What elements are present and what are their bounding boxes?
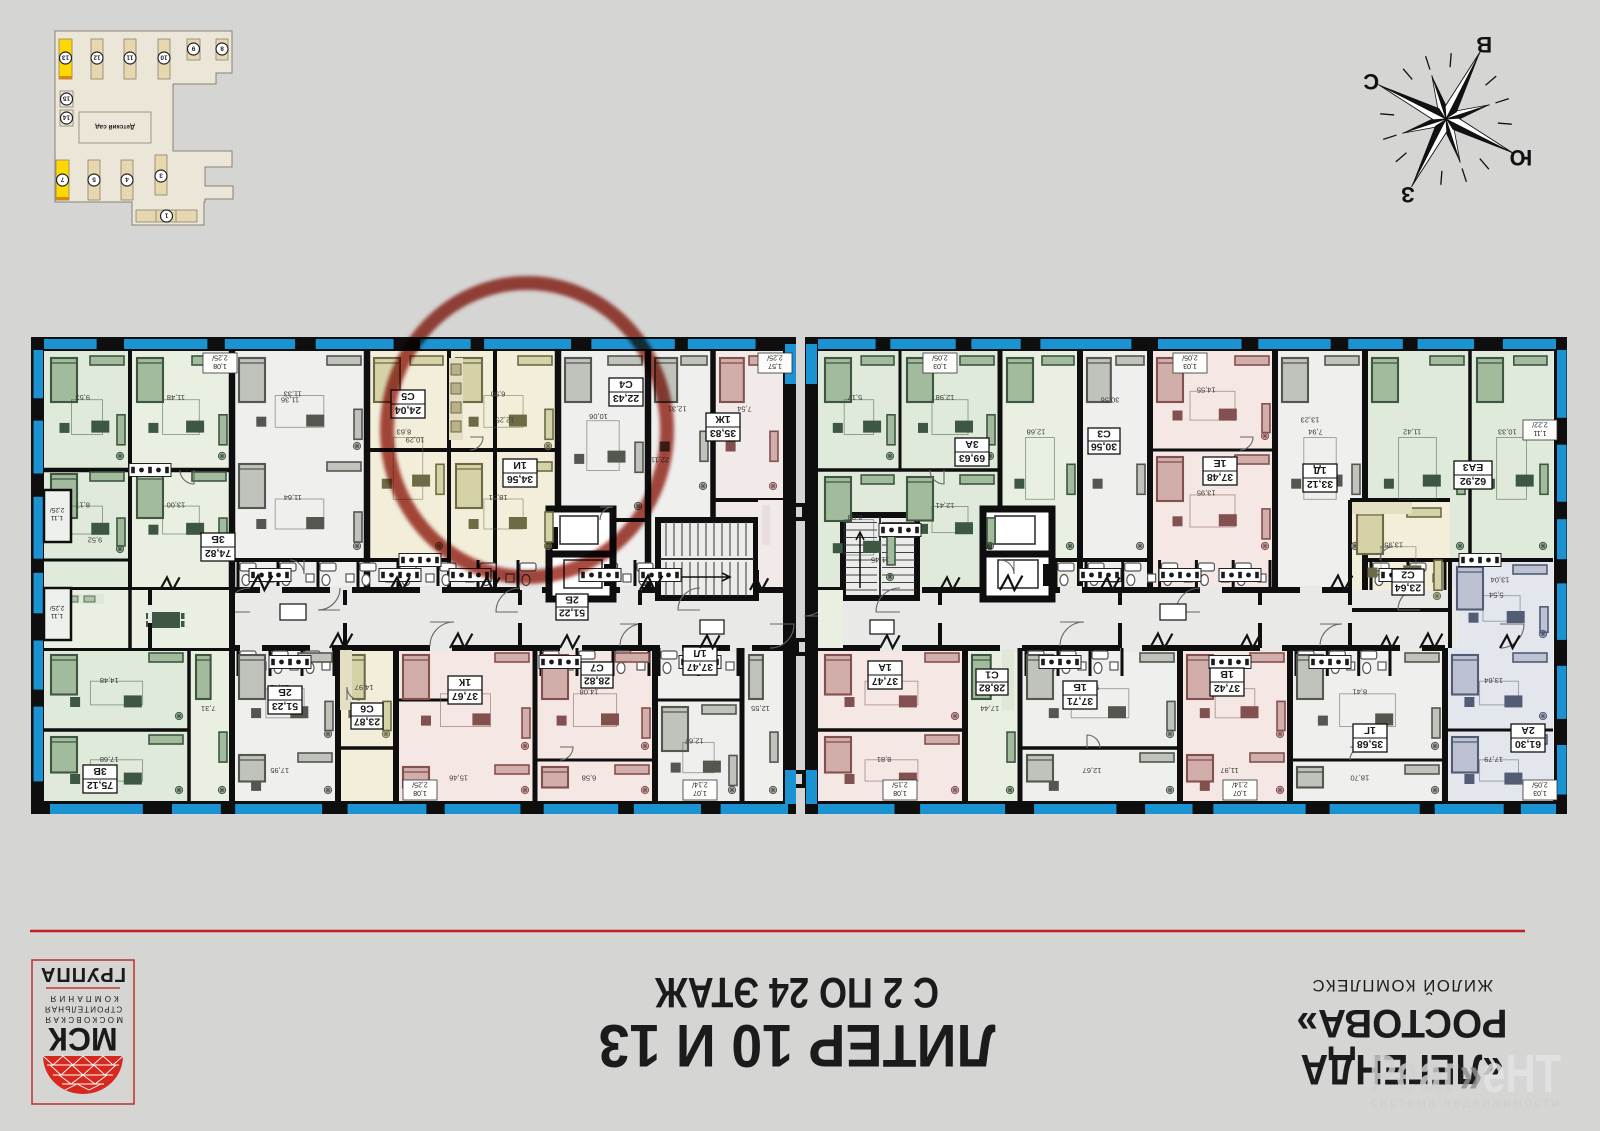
svg-text:22,43: 22,43 [613, 392, 639, 404]
svg-text:1,08: 1,08 [413, 789, 427, 796]
svg-text:РОСТОВА»: РОСТОВА» [1297, 1001, 1508, 1045]
svg-text:1Д: 1Д [1313, 464, 1327, 476]
svg-text:1,08: 1,08 [893, 789, 907, 796]
svg-text:МОСКОВСКАЯ: МОСКОВСКАЯ [43, 1015, 123, 1024]
svg-text:14: 14 [63, 114, 71, 121]
svg-text:З: З [1401, 182, 1415, 207]
svg-text:13,64: 13,64 [1484, 676, 1503, 685]
svg-text:14,08: 14,08 [580, 687, 599, 696]
svg-text:С1: С1 [985, 669, 999, 681]
svg-text:23,87: 23,87 [354, 716, 380, 728]
svg-text:37,48: 37,48 [1207, 471, 1233, 483]
svg-text:28,82: 28,82 [979, 682, 1005, 694]
svg-text:2,05/: 2,05/ [1532, 780, 1548, 787]
svg-text:33,12: 33,12 [1307, 478, 1333, 490]
svg-text:4: 4 [125, 176, 129, 183]
svg-text:1Б: 1Б [1073, 681, 1087, 693]
svg-text:2,14/: 2,14/ [692, 780, 708, 787]
svg-text:ЕА3: ЕА3 [1463, 461, 1484, 473]
svg-text:12: 12 [93, 54, 101, 61]
svg-text:28,82: 28,82 [584, 675, 610, 687]
svg-text:1,57: 1,57 [768, 362, 782, 369]
svg-text:С: С [1363, 69, 1379, 94]
svg-text:37,42: 37,42 [1214, 682, 1240, 694]
svg-text:ГРУППА: ГРУППА [40, 963, 126, 985]
svg-text:13,23: 13,23 [1301, 415, 1320, 424]
svg-text:2Б: 2Б [278, 686, 292, 698]
svg-text:1,07: 1,07 [1233, 789, 1247, 796]
svg-text:система недвижимости: система недвижимости [1371, 1095, 1559, 1110]
svg-text:34,56: 34,56 [507, 473, 533, 485]
svg-text:С5: С5 [401, 390, 415, 402]
svg-text:11,36: 11,36 [281, 395, 299, 404]
svg-text:1И: 1И [513, 459, 526, 471]
svg-text:51,22: 51,22 [559, 607, 585, 619]
svg-text:2,25/: 2,25/ [767, 353, 783, 360]
svg-text:13,95: 13,95 [1197, 489, 1216, 498]
svg-text:12,25: 12,25 [496, 415, 515, 424]
svg-text:1,03: 1,03 [1183, 362, 1197, 369]
svg-text:5,54: 5,54 [1489, 590, 1504, 599]
svg-text:КОМПАНИЯ: КОМПАНИЯ [47, 994, 118, 1003]
svg-text:2,22/: 2,22/ [1532, 420, 1548, 427]
svg-text:11,48: 11,48 [167, 393, 185, 402]
svg-text:10,33: 10,33 [1498, 427, 1517, 436]
svg-text:37,67: 37,67 [452, 690, 478, 702]
svg-text:30,56: 30,56 [1101, 395, 1120, 404]
svg-text:12,67: 12,67 [685, 736, 704, 745]
svg-text:17,95: 17,95 [270, 766, 289, 775]
svg-text:1Е: 1Е [1214, 457, 1227, 469]
svg-text:1,07: 1,07 [693, 789, 707, 796]
svg-text:37,47: 37,47 [687, 661, 713, 673]
svg-text:В: В [1476, 32, 1492, 57]
svg-text:1,11: 1,11 [51, 612, 64, 619]
svg-text:6,50: 6,50 [491, 389, 506, 398]
svg-text:1Л: 1Л [693, 647, 706, 659]
svg-text:2,05/: 2,05/ [932, 353, 948, 360]
svg-text:2,15/: 2,15/ [892, 780, 908, 787]
svg-text:3Б: 3Б [211, 533, 225, 545]
svg-text:17,44: 17,44 [980, 704, 999, 713]
svg-text:2,25/: 2,25/ [50, 506, 65, 513]
svg-text:9,53: 9,53 [75, 393, 90, 402]
svg-text:13,00: 13,00 [167, 500, 186, 509]
svg-text:12,55: 12,55 [751, 704, 770, 713]
svg-text:2,25/: 2,25/ [50, 604, 65, 611]
svg-text:74,82: 74,82 [205, 547, 231, 559]
svg-text:3: 3 [159, 172, 163, 179]
svg-text:8,81: 8,81 [877, 755, 892, 764]
svg-text:12,98: 12,98 [936, 393, 955, 402]
svg-text:1К: 1К [458, 676, 471, 688]
svg-text:13,04: 13,04 [1491, 575, 1510, 584]
svg-text:8,41: 8,41 [1352, 687, 1367, 696]
svg-text:6,08: 6,08 [848, 513, 863, 522]
svg-text:23,64: 23,64 [1395, 582, 1421, 594]
svg-text:11,42: 11,42 [1403, 427, 1421, 436]
svg-text:13: 13 [62, 54, 70, 61]
svg-text:10,29: 10,29 [406, 435, 425, 444]
svg-text:1,11: 1,11 [51, 514, 64, 521]
svg-text:1: 1 [164, 212, 168, 219]
svg-text:МСК: МСК [48, 1021, 118, 1057]
svg-text:8,63: 8,63 [397, 427, 412, 436]
svg-text:8,17: 8,17 [75, 500, 90, 509]
svg-text:24,04: 24,04 [395, 404, 421, 416]
svg-text:14,97: 14,97 [355, 683, 374, 692]
svg-text:1,03: 1,03 [933, 362, 947, 369]
svg-text:2,14/: 2,14/ [1232, 780, 1248, 787]
svg-text:14,48: 14,48 [100, 676, 119, 685]
svg-text:1А: 1А [878, 661, 892, 673]
svg-text:2Б: 2Б [565, 594, 579, 606]
svg-text:1,08: 1,08 [213, 362, 227, 369]
svg-text:7: 7 [60, 176, 64, 183]
svg-text:12,41: 12,41 [936, 501, 955, 510]
svg-text:7,94: 7,94 [1308, 427, 1323, 436]
svg-text:11,97: 11,97 [1220, 766, 1238, 775]
svg-text:9: 9 [191, 45, 195, 52]
svg-text:37,47: 37,47 [872, 675, 898, 687]
svg-text:2,05/: 2,05/ [1182, 353, 1198, 360]
svg-text:С4: С4 [619, 378, 633, 390]
svg-text:11,64: 11,64 [284, 493, 302, 502]
svg-text:1В: 1В [1220, 668, 1234, 680]
svg-text:11: 11 [126, 54, 133, 61]
svg-text:10: 10 [160, 54, 168, 61]
svg-text:18,70: 18,70 [1350, 774, 1369, 783]
svg-text:2А: 2А [1521, 724, 1535, 736]
svg-text:35,83: 35,83 [710, 427, 736, 439]
svg-text:17,79: 17,79 [1484, 755, 1503, 764]
svg-text:10,06: 10,06 [589, 412, 608, 421]
svg-text:51,23: 51,23 [272, 700, 298, 712]
svg-text:7,31: 7,31 [201, 704, 216, 713]
svg-text:Детский сад: Детский сад [95, 123, 134, 131]
svg-text:С 2 ПО 24 ЭТАЖ: С 2 ПО 24 ЭТАЖ [654, 968, 939, 1016]
svg-text:С7: С7 [590, 662, 604, 674]
svg-text:1Ж: 1Ж [715, 413, 731, 425]
svg-text:7,54: 7,54 [737, 405, 752, 414]
svg-text:1,11: 1,11 [1533, 429, 1546, 436]
svg-text:ЖИЛОЙ КОМПЛЕКС: ЖИЛОЙ КОМПЛЕКС [1311, 976, 1493, 995]
svg-text:30,56: 30,56 [1091, 441, 1117, 453]
svg-text:12,67: 12,67 [1083, 766, 1102, 775]
svg-text:2,25/: 2,25/ [412, 780, 428, 787]
svg-text:15,46: 15,46 [449, 774, 468, 783]
svg-text:61,30: 61,30 [1515, 738, 1541, 750]
svg-text:15: 15 [63, 95, 71, 102]
svg-text:62,92: 62,92 [1460, 475, 1486, 487]
svg-text:ЛИТЕР 10 И 13: ЛИТЕР 10 И 13 [599, 1012, 996, 1079]
svg-text:СТРОИТЕЛЬНАЯ: СТРОИТЕЛЬНАЯ [44, 1005, 122, 1014]
svg-text:14,55: 14,55 [1197, 386, 1216, 395]
svg-text:12,68: 12,68 [1027, 427, 1046, 436]
svg-text:5: 5 [92, 176, 96, 183]
svg-text:8: 8 [220, 45, 224, 52]
svg-text:6,58: 6,58 [582, 774, 597, 783]
svg-text:1,03: 1,03 [1533, 789, 1547, 796]
svg-text:С6: С6 [360, 703, 374, 715]
svg-text:75,12: 75,12 [87, 779, 113, 791]
svg-text:17,68: 17,68 [100, 755, 119, 764]
svg-text:37,71: 37,71 [1067, 695, 1093, 707]
svg-text:9,52: 9,52 [88, 535, 103, 544]
svg-text:11,45: 11,45 [871, 555, 889, 564]
svg-text:2,25/: 2,25/ [212, 353, 228, 360]
svg-text:69,63: 69,63 [959, 452, 985, 464]
svg-text:5,17: 5,17 [848, 393, 863, 402]
svg-text:Ю: Ю [1510, 145, 1533, 170]
svg-text:3А: 3А [965, 438, 979, 450]
svg-text:С2: С2 [1401, 569, 1415, 581]
svg-text:18,51: 18,51 [489, 493, 508, 502]
svg-text:3В: 3В [93, 765, 107, 777]
svg-text:С3: С3 [1097, 428, 1111, 440]
svg-text:1Г: 1Г [1364, 724, 1376, 736]
svg-text:35,68: 35,68 [1357, 738, 1383, 750]
